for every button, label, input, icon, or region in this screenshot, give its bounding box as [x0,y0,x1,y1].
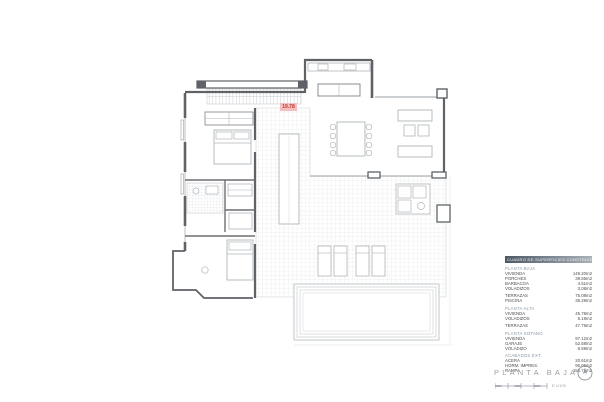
section-terrazas-alta: TERRAZAS47.79m2 [505,323,592,328]
section-planta-baja: PLANTA BAJA VIVIENDA149.20m2 PORCHES39.6… [505,266,592,291]
table-row: VOLADIZO8.59m2 [505,346,592,351]
bed-double-icon [214,130,251,164]
outdoor-lounge [396,184,430,214]
scale-label: E 1/100 [552,383,566,388]
kitchen-counter [308,63,370,71]
table-row: PISCINA35.29m2 [505,298,592,303]
shower-icon [206,186,218,194]
surface-table: CUADRO DE SUPERFICIES CONSTRUIDAS PLANTA… [505,256,592,373]
kitchen-island [318,84,360,96]
bathroom [187,183,223,213]
scale-bar [495,382,551,390]
section-planta-sotano: PLANTA SOTANO VIVIENDA97.12m2 GARAJE52.5… [505,331,592,351]
dining-table [330,122,372,156]
pool [294,284,439,340]
table-row: TERRAZAS47.79m2 [505,323,592,328]
highlighted-area-label: 19.78 [280,103,297,111]
toilet-icon [202,267,208,273]
surface-table-header: CUADRO DE SUPERFICIES CONSTRUIDAS [505,256,592,263]
bed-icon [227,240,253,280]
sink-icon [318,64,328,70]
washbasin-icon [193,188,199,194]
planter [279,134,299,224]
drawing-sheet: 19.78 CUADRO DE SUPERFICIES CONSTRUIDAS … [0,0,604,402]
title-block: PLANTA BAJA E 1/100 [494,368,598,377]
table-row: VOLADIZOS3.08m2 [505,286,592,291]
bedroom-2 [228,184,252,229]
section-planta-alta: PLANTA ALTA VIVIENDA45.78m2 VOLADIZOS5.1… [505,306,592,321]
living-dining [330,110,432,157]
section-terrazas-baja: TERRAZAS75.08m2 PISCINA35.29m2 [505,293,592,303]
kitchen [308,63,370,96]
bedroom-1 [205,112,253,164]
bedroom-3 [202,240,253,280]
table-row: VOLADIZOS5.19m2 [505,316,592,321]
sofa-set [398,110,432,157]
north-arrow-icon [576,364,594,382]
hob-icon [344,64,356,70]
